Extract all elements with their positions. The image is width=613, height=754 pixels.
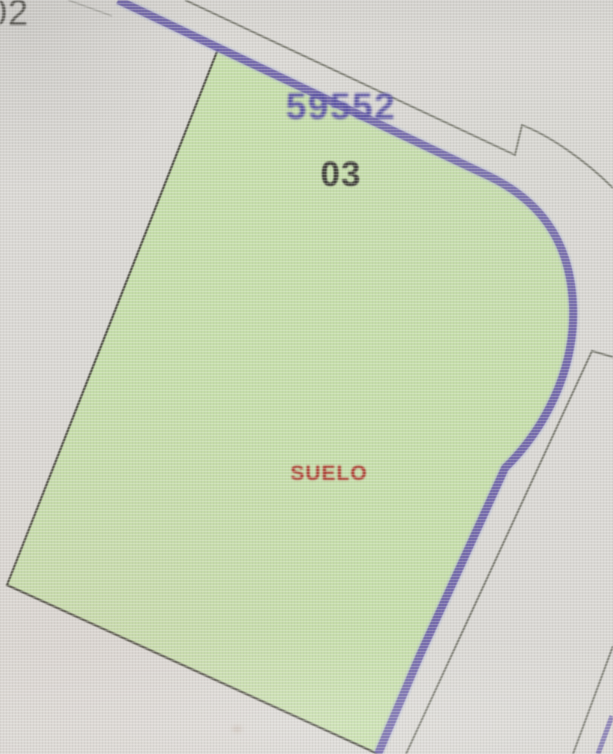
- cadastral-map-canvas[interactable]: 02 59552 03 SUELO: [0, 0, 613, 754]
- parcel-number-label: 03: [321, 155, 362, 194]
- land-use-label: SUELO: [290, 462, 367, 485]
- block-number-label: 59552: [286, 86, 396, 127]
- cadastral-map-viewport[interactable]: 02 59552 03 SUELO: [0, 0, 613, 754]
- adjacent-parcel-label: 02: [0, 0, 29, 33]
